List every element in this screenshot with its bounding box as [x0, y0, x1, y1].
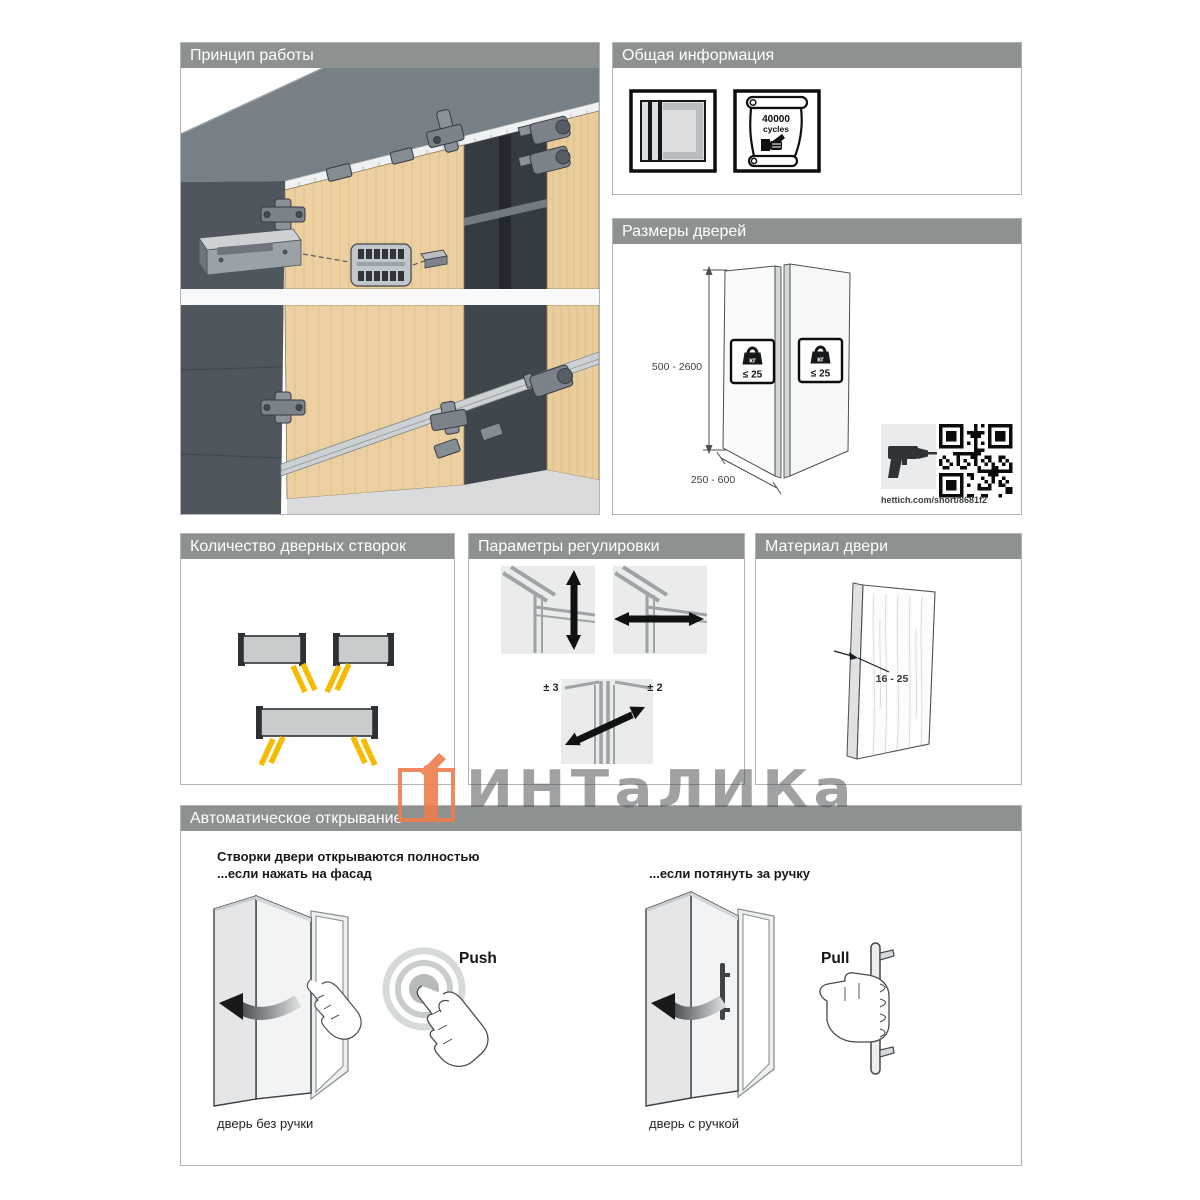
door-dimensions-drawing: кг ≤ 25 кг ≤ 25	[613, 244, 1021, 514]
pull-door-illustration	[631, 881, 961, 1126]
panel-adjustment-body: ± 3 ± 2 ± 2	[469, 559, 744, 784]
panel-leaf-count-body	[181, 559, 454, 784]
panel-door-dimensions: Размеры дверей кг ≤ 25	[612, 218, 1022, 515]
panel-leaf-count-title: Количество дверных створок	[190, 538, 406, 555]
vertical-adjustment-diagram	[501, 566, 595, 654]
folding-door-icon	[629, 89, 717, 173]
qr-link-caption: hettich.com/short/8681f2	[881, 495, 987, 505]
weight-unit: кг	[817, 355, 824, 364]
cycles-certificate-icon: 40000 cycles	[733, 89, 821, 173]
cycles-word: cycles	[763, 124, 789, 134]
weight-badge: кг ≤ 25	[731, 340, 774, 383]
panel-auto-open-header: Автоматическое открывание	[181, 806, 1021, 831]
weight-limit: ≤ 25	[743, 370, 763, 381]
panel-leaf-count: Количество дверных створок	[180, 533, 455, 785]
panel-principle-header: Принцип работы	[181, 43, 599, 68]
weight-limit: ≤ 25	[811, 369, 831, 380]
pull-label: Pull	[821, 950, 849, 968]
panel-adjustment-header: Параметры регулировки	[469, 534, 744, 559]
depth-adjustment-diagram	[561, 679, 653, 764]
auto-open-intro-line1: Створки двери открываются полностью	[217, 849, 479, 864]
panel-general-info-title: Общая информация	[622, 47, 774, 64]
panel-general-info: Общая информация 40000 cycles	[612, 42, 1022, 195]
panel-auto-open: Автоматическое открывание Створки двери …	[180, 805, 1022, 1166]
auto-open-pull-intro: ...если потянуть за ручку	[649, 866, 810, 881]
door-thickness-value: 16 - 25	[876, 673, 909, 685]
panel-door-material: Материал двери 16 - 25	[755, 533, 1022, 785]
panel-door-material-body: 16 - 25	[756, 559, 1021, 784]
door-height-range-label: 500 - 2600	[652, 361, 702, 373]
panel-principle: Принцип работы	[180, 42, 600, 515]
panel-door-dimensions-header: Размеры дверей	[613, 219, 1021, 244]
drilling-template	[351, 244, 411, 286]
folded-door-leaves	[646, 892, 738, 1106]
highlight-band	[181, 289, 599, 305]
pull-caption: дверь с ручкой	[649, 1116, 739, 1131]
panel-principle-title: Принцип работы	[190, 47, 314, 64]
pull-hand-icon	[820, 973, 889, 1042]
push-door-illustration	[201, 881, 521, 1126]
cabinet-frame	[738, 909, 774, 1097]
panel-adjustment-title: Параметры регулировки	[478, 538, 660, 555]
horizontal-adjustment-value: ± 2	[647, 682, 662, 694]
panel-general-info-header: Общая информация	[613, 43, 1021, 68]
door-width-range-label: 250 - 600	[691, 474, 735, 486]
push-caption: дверь без ручки	[217, 1116, 313, 1131]
cabinet-illustration	[181, 68, 599, 514]
push-symbol	[386, 951, 488, 1066]
vertical-adjustment-value: ± 3	[543, 682, 558, 694]
auto-open-intro-line2: ...если нажать на фасад	[217, 866, 372, 881]
push-label: Push	[459, 950, 497, 968]
panel-principle-body	[181, 68, 599, 514]
panel-general-info-body: 40000 cycles	[613, 68, 1021, 194]
weight-unit: кг	[749, 356, 756, 365]
panel-door-dimensions-title: Размеры дверей	[622, 223, 746, 240]
door-material-drawing	[756, 559, 1021, 784]
panel-adjustment: Параметры регулировки	[468, 533, 745, 785]
panel-door-dimensions-body: кг ≤ 25 кг ≤ 25	[613, 244, 1021, 514]
panel-auto-open-title: Автоматическое открывание	[190, 810, 403, 827]
panel-door-material-title: Материал двери	[765, 538, 888, 555]
panel-leaf-count-header: Количество дверных створок	[181, 534, 454, 559]
leaf-count-diagram	[181, 559, 454, 784]
panel-door-material-header: Материал двери	[756, 534, 1021, 559]
horizontal-adjustment-diagram	[613, 566, 707, 654]
qr-code	[937, 422, 1015, 500]
wood-doors-lower	[281, 305, 599, 514]
adjustment-diagrams	[469, 559, 744, 784]
weight-badge: кг ≤ 25	[799, 339, 842, 382]
